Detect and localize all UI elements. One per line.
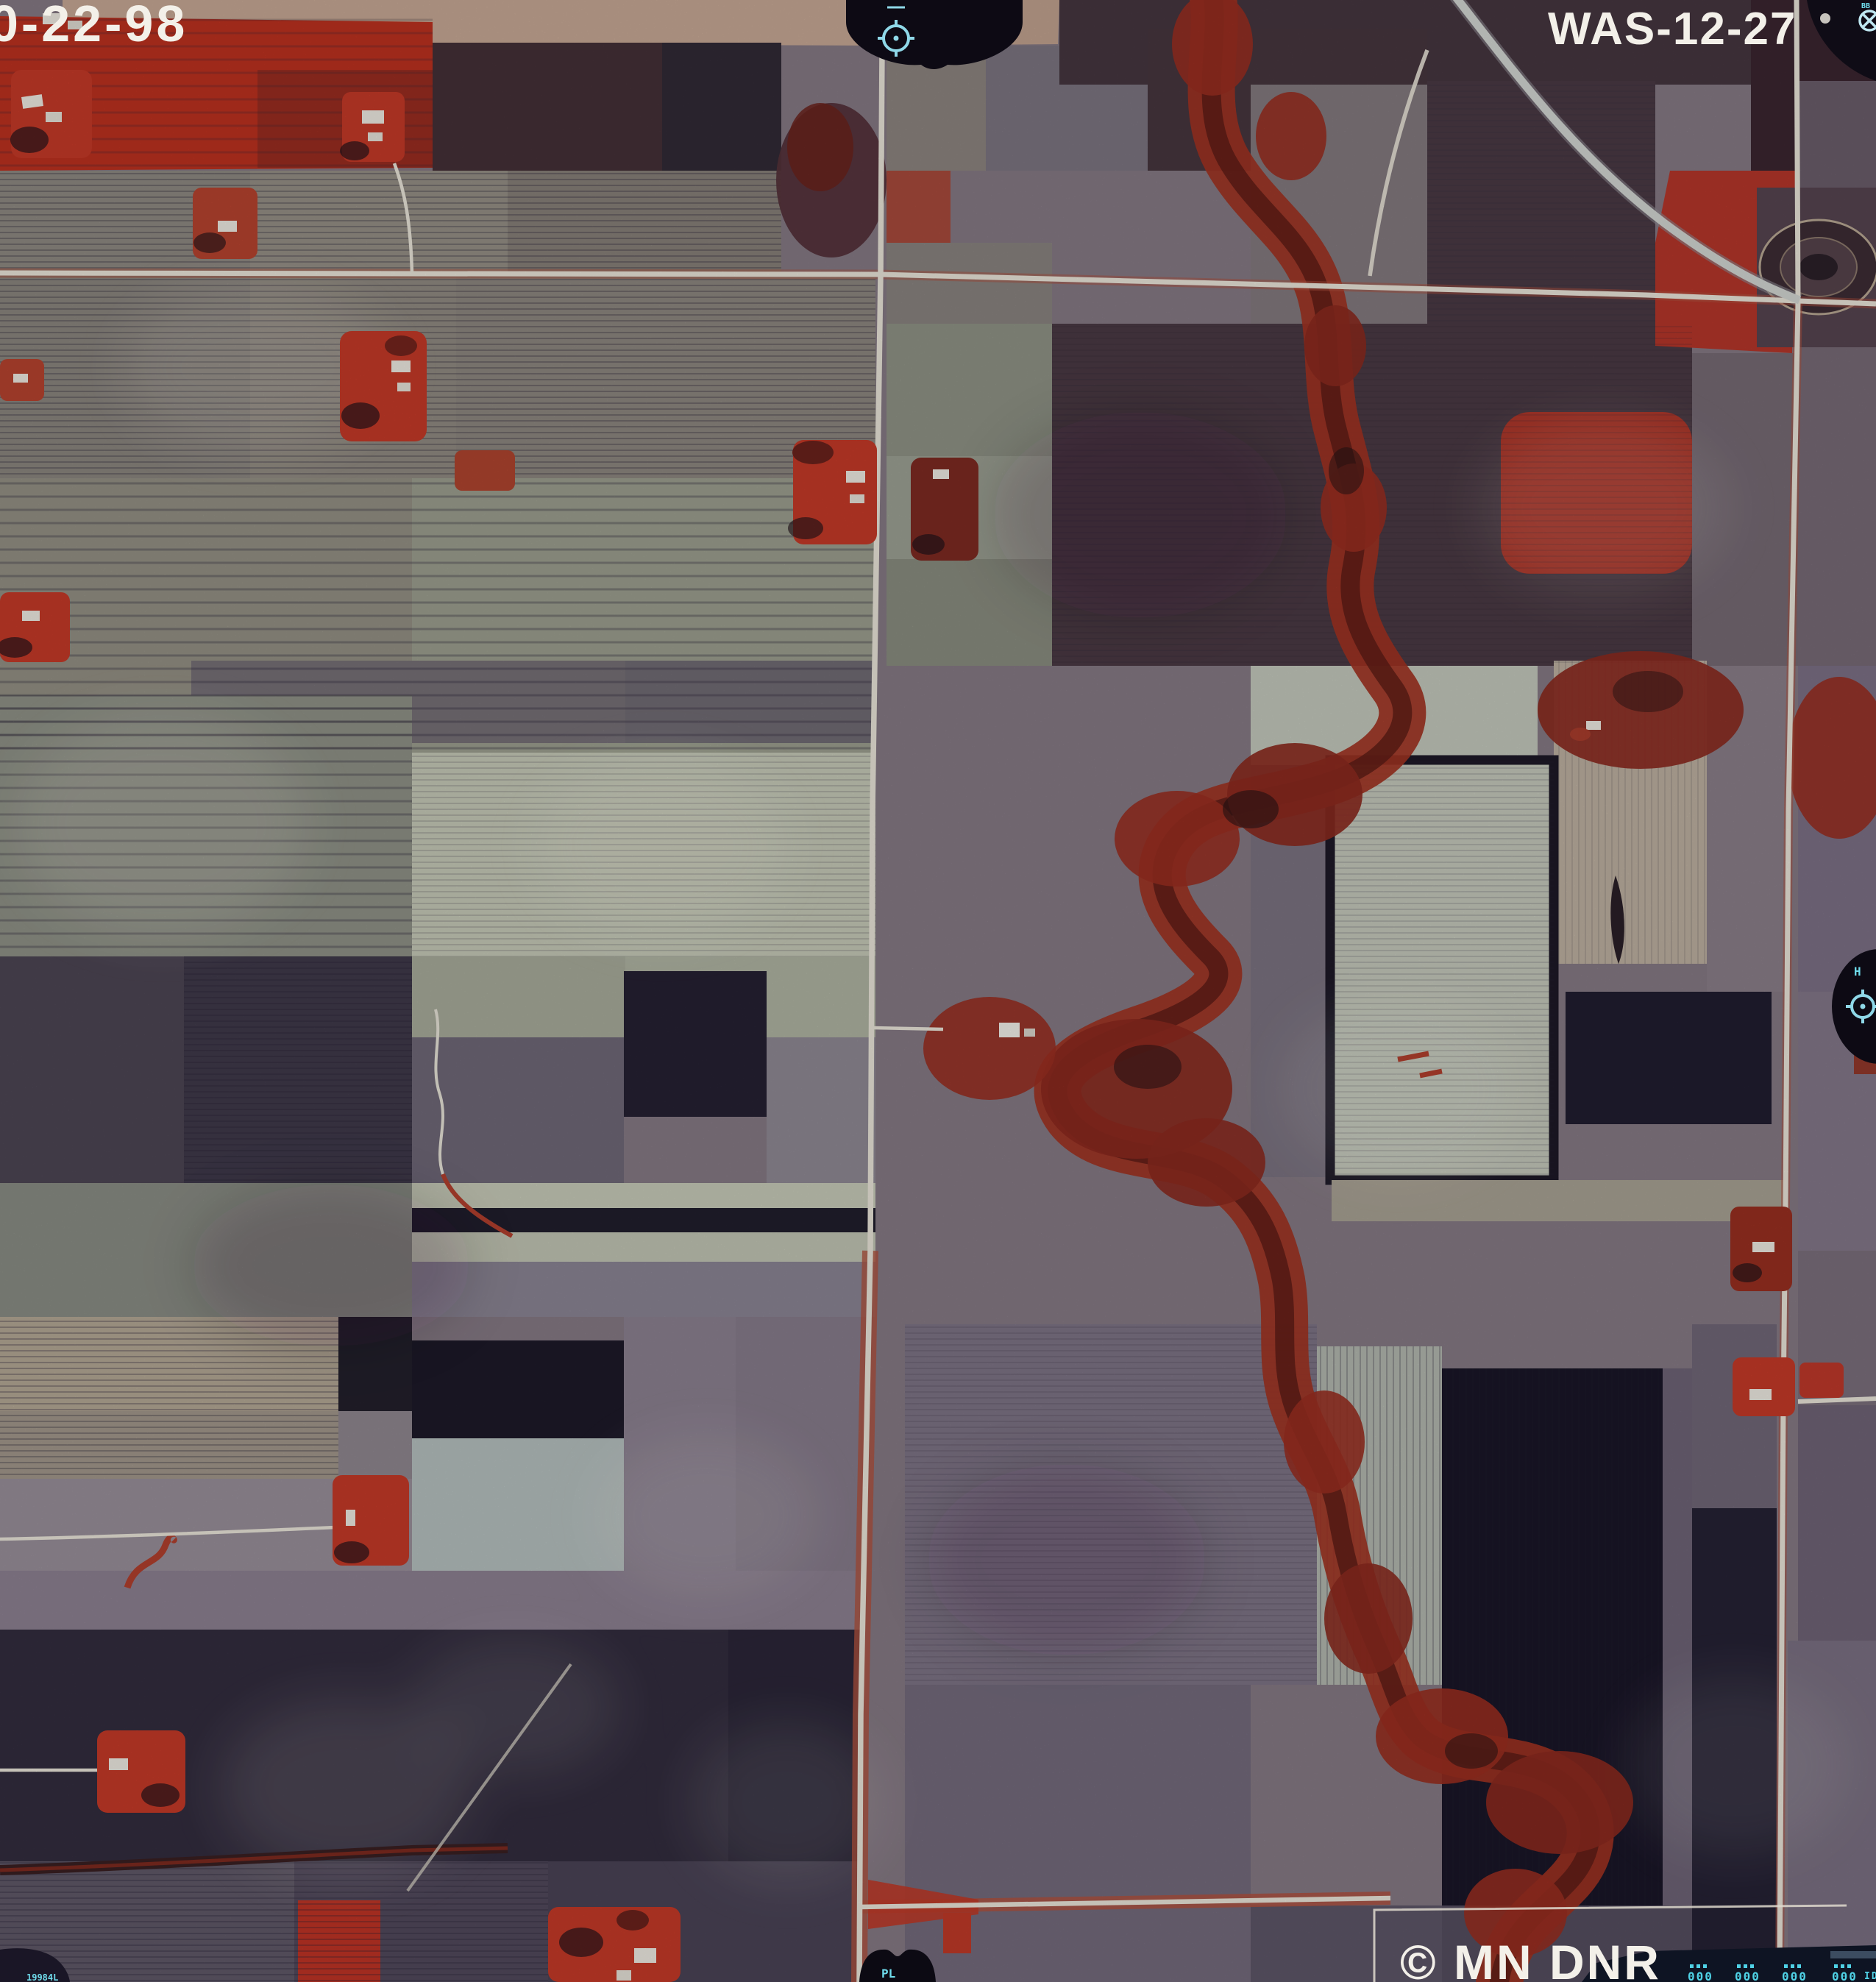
svg-text:000: 000 bbox=[1735, 1969, 1760, 1982]
white-dot bbox=[1820, 13, 1830, 24]
film-counter-label: 19984L bbox=[26, 1972, 58, 1982]
svg-text:000: 000 bbox=[1688, 1969, 1713, 1982]
fiducial-glyph: PL bbox=[881, 1967, 895, 1981]
aerial-photo: BB H PL 19984L bbox=[0, 0, 1876, 1982]
data-strip-end-label: ID bbox=[1864, 1971, 1876, 1982]
fiducial-glyph: BB bbox=[1861, 2, 1870, 10]
film-grain-overlay bbox=[0, 0, 1876, 1982]
svg-text:000: 000 bbox=[1782, 1969, 1808, 1982]
fiducial-glyph: H bbox=[1854, 965, 1861, 978]
date-label: 0-22-98 bbox=[0, 0, 188, 52]
svg-text:000: 000 bbox=[1832, 1969, 1858, 1982]
aerial-photo-frame: BB H PL 19984L bbox=[0, 0, 1876, 1982]
data-strip-bar bbox=[1830, 1951, 1876, 1958]
photo-id-label: WAS-12-27 bbox=[1548, 4, 1797, 54]
copyright-label: © MN DNR bbox=[1400, 1935, 1661, 1982]
